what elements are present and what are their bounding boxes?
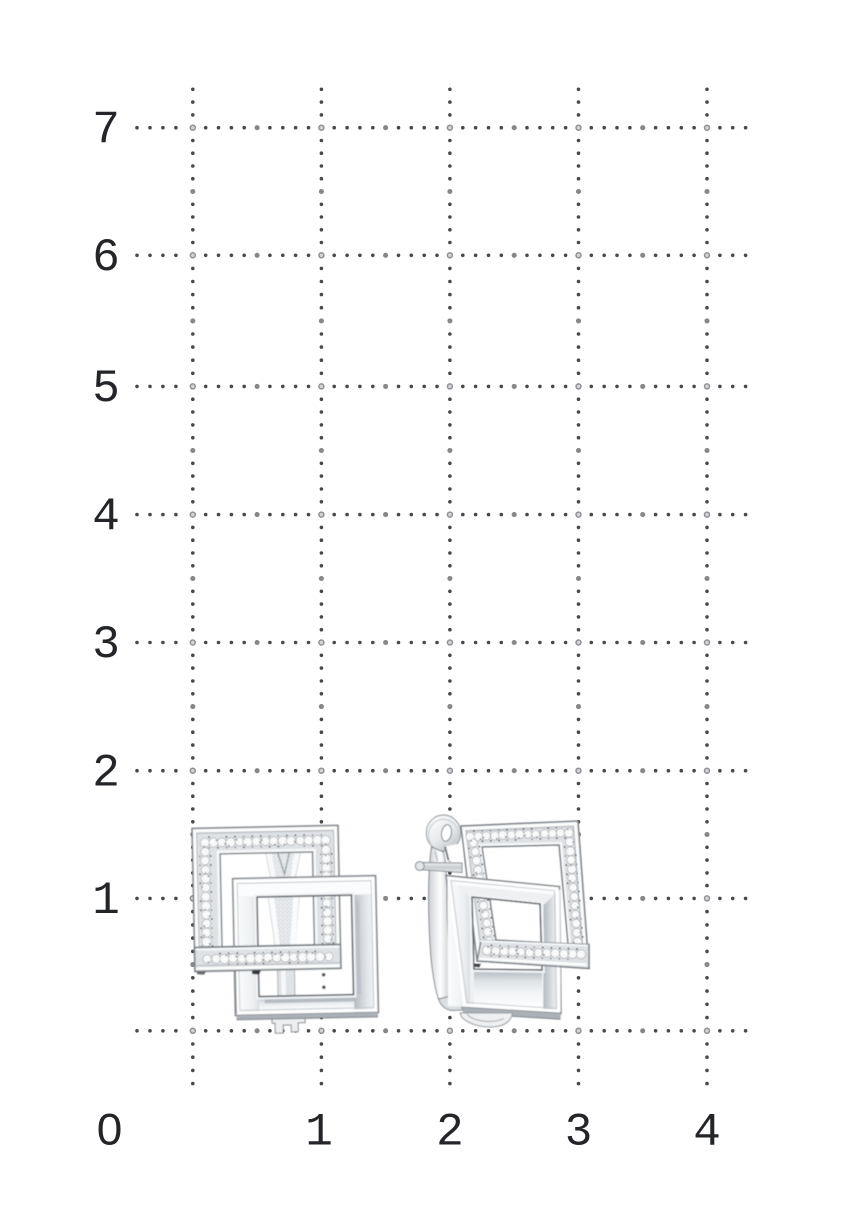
svg-text:4: 4 [92, 491, 120, 543]
svg-text:2: 2 [92, 747, 120, 799]
svg-text:1: 1 [305, 1107, 333, 1159]
svg-text:3: 3 [92, 619, 120, 671]
svg-text:1: 1 [92, 875, 120, 927]
svg-text:3: 3 [565, 1107, 593, 1159]
svg-text:6: 6 [92, 232, 120, 284]
svg-text:7: 7 [92, 104, 120, 156]
svg-text:2: 2 [436, 1107, 464, 1159]
svg-text:5: 5 [92, 363, 120, 415]
svg-text:4: 4 [693, 1107, 721, 1159]
